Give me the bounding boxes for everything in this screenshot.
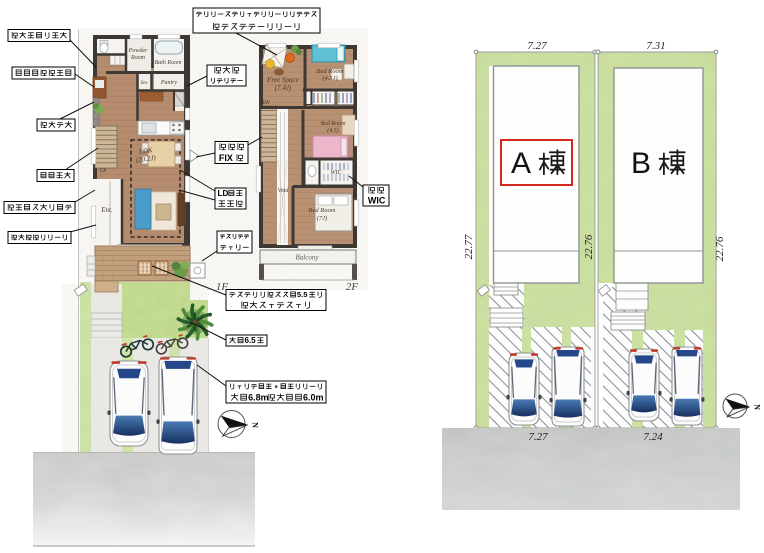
svg-text:Bed Room: Bed Room [317, 68, 344, 75]
svg-text:7.24: 7.24 [643, 431, 663, 443]
svg-text:DN: DN [262, 101, 271, 106]
svg-text:22.76: 22.76 [714, 236, 726, 261]
svg-text:Free Space: Free Space [266, 76, 298, 84]
svg-text:(4.5): (4.5) [327, 127, 339, 134]
svg-text:N: N [753, 404, 762, 410]
svg-text:6.5: 6.5 [245, 336, 257, 345]
svg-text:Ent.: Ent. [100, 206, 113, 214]
svg-text:FIX: FIX [219, 153, 233, 163]
svg-text:Bed Room: Bed Room [309, 207, 336, 214]
svg-text:B: B [631, 147, 651, 180]
svg-text:(4.5J): (4.5J) [322, 75, 337, 82]
svg-text:WIC: WIC [368, 196, 386, 206]
svg-text:6.0m: 6.0m [303, 392, 324, 402]
svg-text:7.31: 7.31 [646, 40, 665, 52]
svg-text:22.76: 22.76 [583, 234, 595, 259]
svg-text:Bed Room: Bed Room [321, 121, 346, 127]
svg-text:Powder: Powder [128, 48, 148, 54]
svg-text:Sto: Sto [140, 80, 147, 86]
svg-text:Pantry: Pantry [160, 80, 178, 86]
svg-text:(7J): (7J) [317, 215, 327, 222]
svg-text:7.27: 7.27 [527, 40, 547, 52]
svg-text:UP: UP [100, 169, 107, 174]
svg-text:LD: LD [218, 189, 229, 198]
svg-text:Void: Void [278, 188, 290, 194]
svg-text:Balcony: Balcony [296, 254, 320, 262]
svg-text:N: N [251, 422, 260, 428]
svg-text:2F: 2F [346, 281, 359, 293]
svg-text:(7.4J): (7.4J) [275, 84, 292, 92]
svg-text:5.5: 5.5 [297, 290, 308, 299]
svg-text:7.27: 7.27 [528, 431, 548, 443]
svg-text:WIC: WIC [331, 170, 343, 176]
svg-text:6.8m: 6.8m [248, 392, 269, 402]
svg-text:Room: Room [130, 55, 146, 61]
svg-text:22.77: 22.77 [463, 234, 475, 259]
svg-text:A: A [511, 147, 531, 180]
svg-text:Bath Room: Bath Room [155, 60, 182, 66]
